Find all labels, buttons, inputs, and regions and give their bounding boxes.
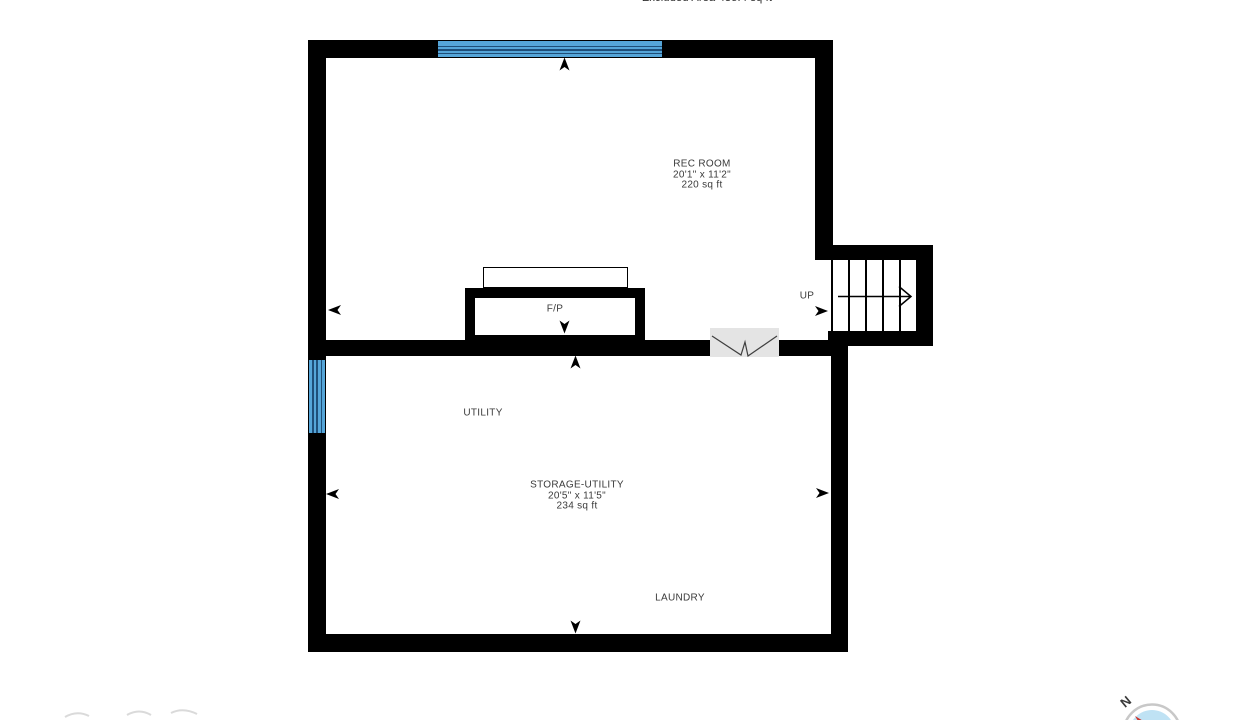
- wall-arrow-down-icon: [571, 621, 581, 634]
- fireplace-hearth: [483, 267, 628, 288]
- wall-arrow-right-icon: [816, 488, 829, 498]
- wall-arrow-right-icon: [815, 306, 828, 316]
- window-left: [308, 359, 326, 434]
- window-pane-line: [438, 53, 662, 55]
- floor-plan-canvas: Excluded Area 435.4 sq ft F/P UP: [0, 0, 1240, 720]
- window-pane-line: [312, 360, 314, 433]
- window-pane-line: [316, 360, 318, 433]
- fireplace-label: F/P: [547, 304, 563, 315]
- room-name: STORAGE-UTILITY: [530, 480, 624, 491]
- compass-rose-icon: N: [1112, 688, 1197, 720]
- laundry-label: LAUNDRY: [655, 593, 705, 604]
- room-area: 220 sq ft: [673, 180, 731, 191]
- room-area: 234 sq ft: [530, 501, 624, 512]
- stair-tread-line: [831, 260, 833, 331]
- rec-room-label: REC ROOM 20'1" x 11'2" 220 sq ft: [673, 159, 731, 191]
- storage-utility-label: STORAGE-UTILITY 20'5" x 11'5" 234 sq ft: [530, 480, 624, 512]
- wall-bottom: [308, 634, 848, 652]
- wall-arrow-left-icon: [326, 489, 339, 499]
- stairs-direction-arrow-icon: [836, 284, 916, 309]
- window-pane-line: [321, 360, 323, 433]
- window-top: [437, 40, 663, 58]
- wall-right-upper: [815, 40, 833, 260]
- wall-arrow-up-icon: [560, 58, 570, 71]
- window-pane-line: [438, 46, 662, 48]
- excluded-area-note: Excluded Area 435.4 sq ft: [642, 0, 772, 4]
- wall-middle-left: [308, 340, 711, 356]
- wall-arrow-left-icon: [328, 305, 341, 315]
- watermark-remnant: [55, 706, 215, 720]
- wall-arrow-up-icon: [571, 356, 581, 369]
- utility-label: UTILITY: [463, 408, 502, 419]
- window-pane-line: [438, 49, 662, 51]
- wall-opening-symbol: [710, 328, 779, 357]
- compass-north-label: N: [1117, 693, 1134, 711]
- wall-right-lower: [831, 340, 848, 652]
- wall-arrow-down-icon: [560, 321, 570, 334]
- stairs-up-label: UP: [800, 291, 815, 302]
- room-name: REC ROOM: [673, 159, 731, 170]
